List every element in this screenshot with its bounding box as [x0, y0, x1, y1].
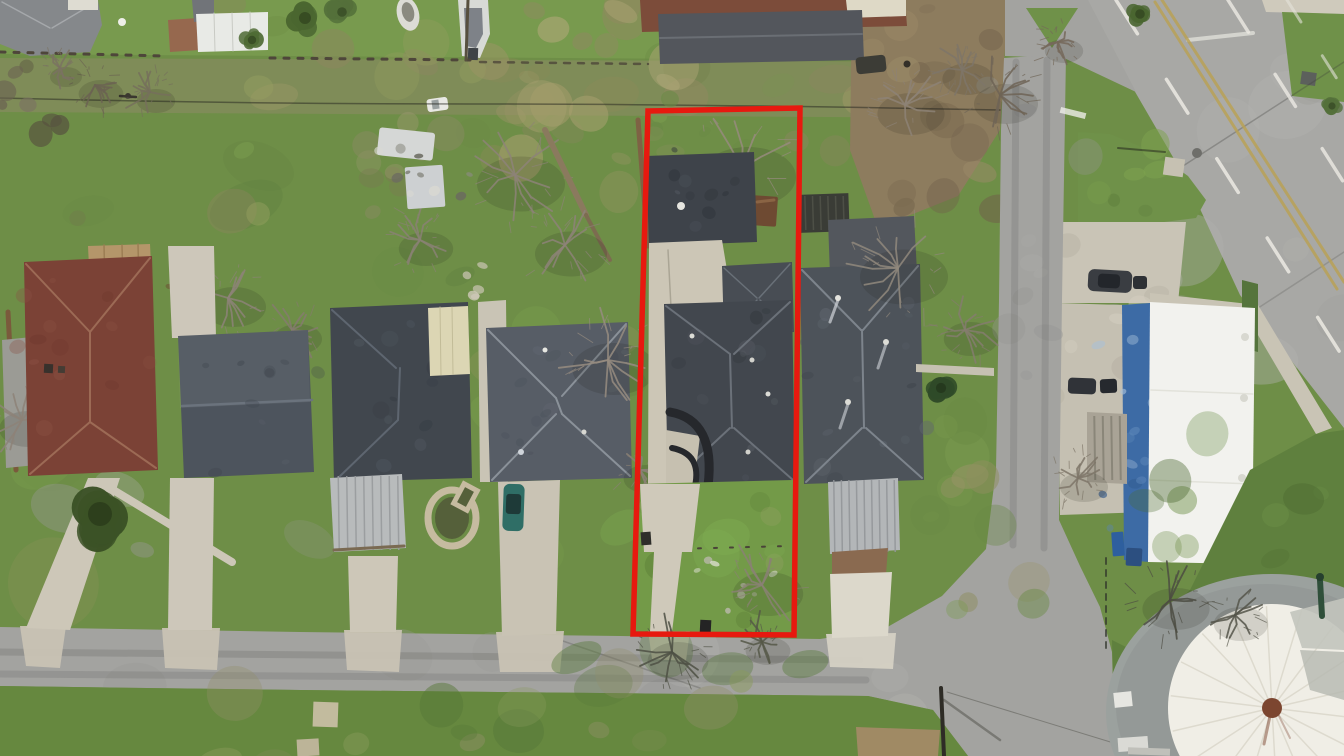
house-5-white-pad — [830, 572, 892, 638]
tank-pipe — [1320, 580, 1322, 616]
picnic-table-top — [757, 200, 774, 202]
corner-grass — [1282, 12, 1344, 102]
subject-bin-1 — [641, 532, 652, 546]
subject-wing-vent — [677, 202, 685, 210]
yard-dog — [118, 18, 126, 26]
driveway-apron-1 — [20, 626, 66, 668]
lane-car-2 — [1100, 379, 1117, 394]
parked-car-dark-2 — [1133, 276, 1147, 289]
corner-drain-grate — [1300, 71, 1317, 86]
house-5-vent-3 — [845, 399, 851, 405]
fence-top-2 — [270, 58, 470, 60]
subject-vent-4 — [746, 450, 751, 455]
fence-top-3 — [466, 0, 468, 60]
verge-pad-2 — [297, 738, 320, 756]
power-pole-2 — [904, 61, 911, 68]
corner-pad — [1262, 0, 1344, 14]
house-5-vent-1 — [835, 295, 841, 301]
teal-car-glass — [506, 494, 522, 515]
house-3-cream-panel — [428, 306, 470, 376]
aerial-photo-canvas — [0, 0, 1344, 756]
subject-vent-1 — [690, 334, 695, 339]
island-grate-pad — [1163, 157, 1185, 178]
aerial-photo — [0, 0, 1344, 756]
driveway-apron-2 — [162, 628, 220, 670]
subject-vent-3 — [766, 392, 771, 397]
house-2-roof-shade — [178, 330, 310, 408]
house-4-vent-1 — [543, 348, 548, 353]
driveway-apron-5 — [826, 633, 896, 669]
house-4-vent-2 — [582, 430, 587, 435]
subject-vent-2 — [750, 358, 755, 363]
rv-trailer — [377, 127, 436, 161]
house-a-pad — [68, 0, 98, 10]
warehouse-roof-vent-2 — [1240, 394, 1248, 402]
house-2-lower-drive — [168, 478, 214, 630]
driveway-apron-3 — [344, 630, 402, 672]
lane-car-1 — [1068, 378, 1097, 395]
verge-pad-1 — [313, 702, 339, 728]
rv-canopy — [405, 165, 446, 210]
tank-utility-box-1 — [1113, 691, 1132, 708]
blue-dumpster — [1111, 532, 1125, 557]
chimney-1 — [44, 364, 53, 373]
lane-tire-line-1 — [1013, 62, 1016, 545]
bottom-verge — [0, 686, 968, 756]
warehouse-roof-vent-1 — [1241, 333, 1249, 341]
house-5-vent-2 — [883, 339, 889, 345]
garage-3-drive — [348, 556, 398, 632]
chimney-2 — [58, 366, 65, 373]
house-4-satellite-dish — [518, 449, 524, 455]
warehouse-corner-unit — [1126, 548, 1143, 567]
alley-dark-car — [855, 54, 887, 74]
house-5-brown-pad — [832, 548, 888, 576]
parked-car-dark-roof — [1098, 273, 1121, 288]
lane-tire-line-2 — [1044, 60, 1047, 548]
garage-3 — [330, 474, 406, 552]
tank-catwalk — [1128, 747, 1170, 755]
boat-large-motor — [468, 48, 478, 60]
subject-wing-roof — [646, 152, 757, 246]
verge-dirt-patch — [856, 727, 940, 756]
house-2-upper-drive — [168, 246, 216, 338]
house-b-brown-roof — [168, 18, 200, 52]
tank-pipe-top — [1316, 573, 1324, 581]
road-manhole — [1192, 148, 1202, 158]
